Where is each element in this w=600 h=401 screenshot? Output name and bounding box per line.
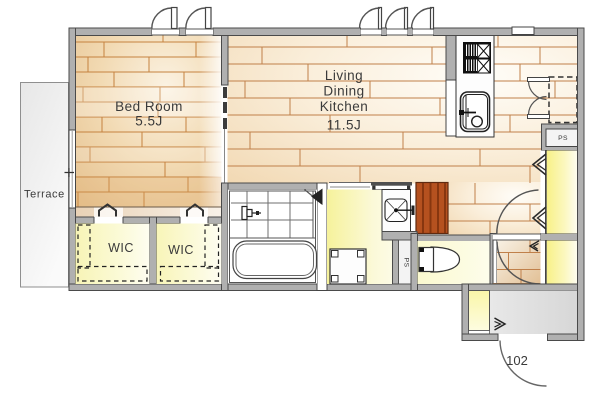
svg-text:Bed Room: Bed Room	[115, 99, 183, 114]
svg-text:11.5J: 11.5J	[327, 118, 362, 133]
svg-text:PS: PS	[558, 135, 568, 142]
svg-text:5.5J: 5.5J	[135, 114, 163, 129]
svg-text:Living: Living	[325, 68, 363, 83]
svg-text:Kitchen: Kitchen	[320, 99, 369, 114]
svg-text:WIC: WIC	[168, 243, 194, 257]
svg-text:Terrace: Terrace	[24, 189, 65, 201]
svg-text:WIC: WIC	[108, 241, 134, 255]
svg-text:102: 102	[506, 353, 528, 368]
svg-text:PS: PS	[403, 258, 410, 268]
svg-text:Dining: Dining	[323, 84, 364, 99]
